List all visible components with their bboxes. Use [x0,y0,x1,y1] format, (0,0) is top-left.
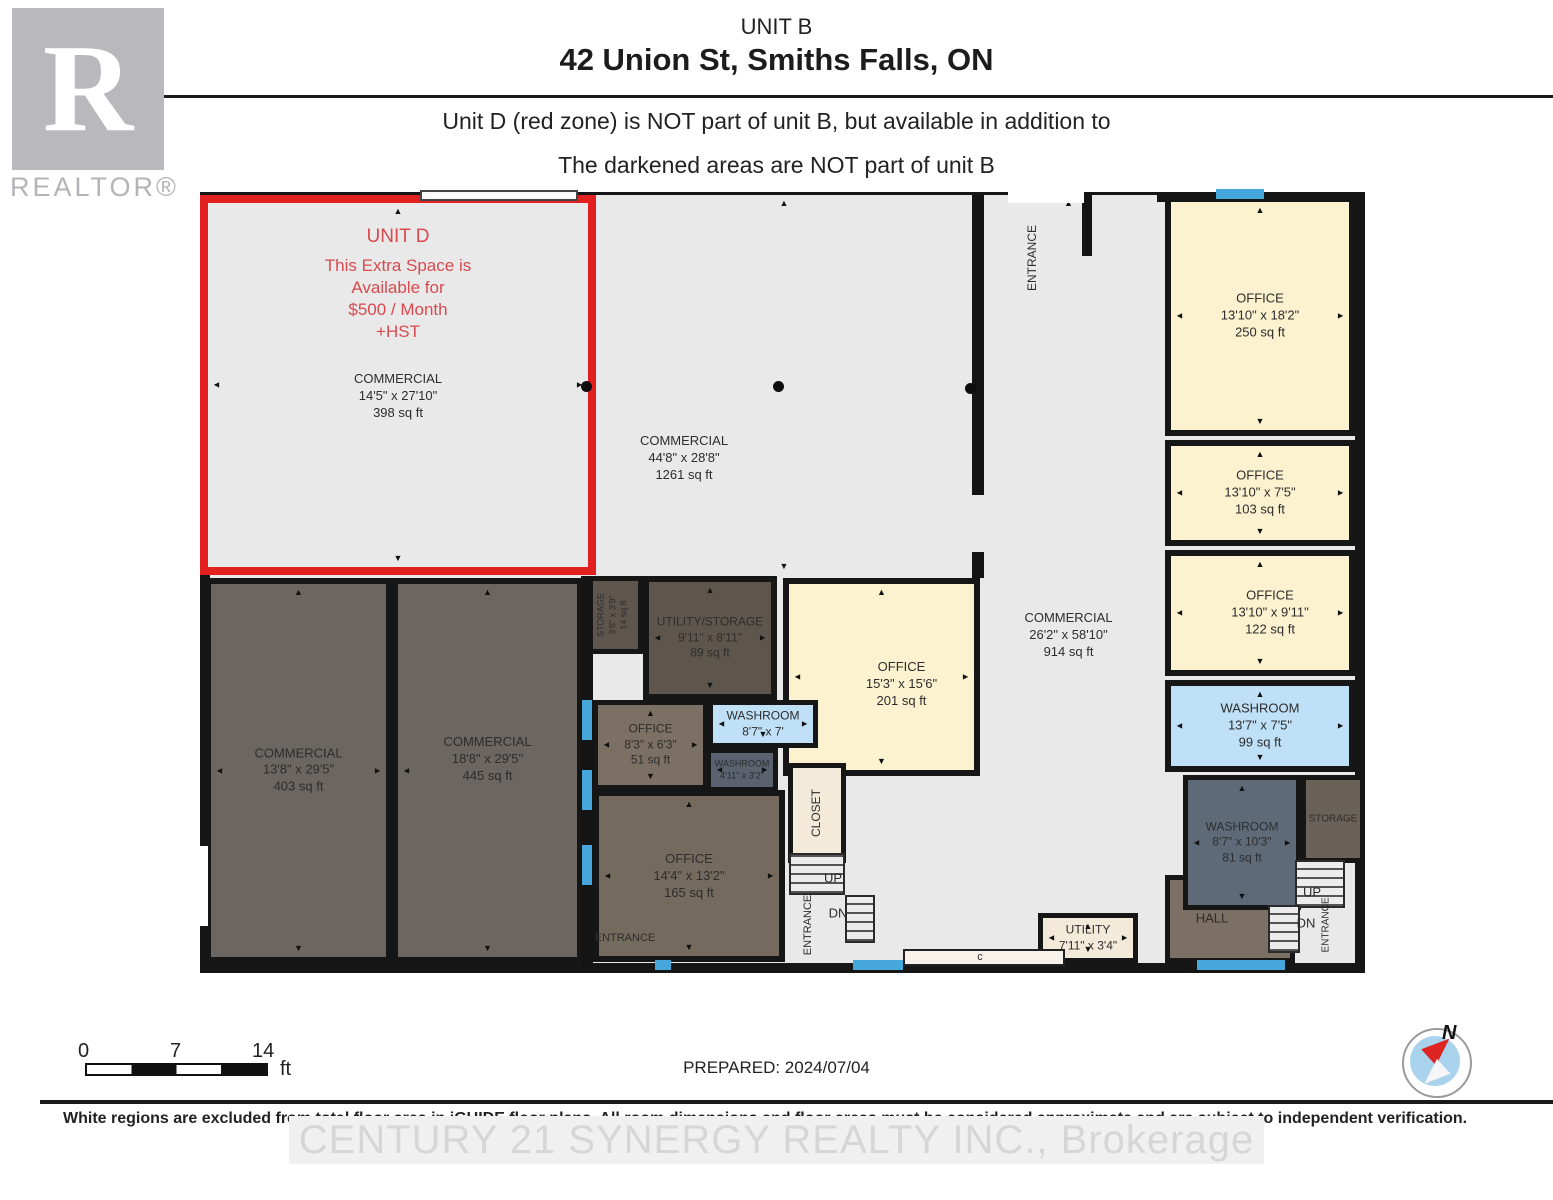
dimension-arrow-down: ▼ [780,562,789,571]
dimension-arrow-left: ◄ [1175,609,1184,618]
room-label-hall-0: HALL [1196,911,1229,928]
dimension-arrow-left: ◄ [602,741,611,750]
floorplan-page: UNIT B 42 Union St, Smiths Falls, ON Uni… [0,0,1553,1200]
dimension-arrow-down: ▼ [685,943,694,952]
room-washroom-4-11: WASHROOM4'11" x 3'2"◄► [706,748,778,792]
room-commercial-445: COMMERCIAL18'8" x 29'5"445 sq ft▲▼◄ [392,578,583,963]
room-label-commercial-445-0: COMMERCIAL18'8" x 29'5"445 sq ft [443,734,531,785]
room-washroom-99: WASHROOM13'7" x 7'5"99 sq ft▲▼◄► [1165,680,1355,772]
dimension-arrow-right: ► [373,766,382,775]
room-label-unit-d-2: COMMERCIAL14'5" x 27'10"398 sq ft [354,371,442,422]
room-commercial-403: COMMERCIAL13'8" x 29'5"403 sq ft▲▼◄► [205,578,392,963]
dimension-arrow-down: ▼ [483,944,492,953]
stairs-dn-right [1268,905,1300,953]
dimension-arrow-down: ▼ [1256,753,1265,762]
dimension-arrow-down: ▼ [1256,657,1265,666]
dimension-arrow-down: ▼ [1238,892,1247,901]
room-utility-storage-89: UTILITY/STORAGE9'11" x 8'11"89 sq ft▲▼◄► [643,576,777,700]
window [582,770,592,810]
dimension-arrow-left: ◄ [717,720,726,729]
plan-label-c: c [977,951,983,963]
room-label-office-201-0: OFFICE15'3" x 15'6"201 sq ft [866,659,937,710]
dimension-arrow-left: ◄ [1192,838,1201,847]
dimension-arrow-right: ► [1336,609,1345,618]
brokerage-watermark-text: CENTURY 21 SYNERGY REALTY INC., Brokerag… [289,1116,1264,1164]
plan-label-up: UP [1303,885,1321,900]
plan-label-up: UP [824,871,842,886]
room-label-closet-0: CLOSET [809,789,825,837]
room-label-commercial-1261-0: COMMERCIAL44'8" x 28'8"1261 sq ft [640,433,728,484]
room-label-office-165-0: OFFICE14'4" x 13'2"165 sq ft [653,851,724,902]
dimension-arrow-left: ◄ [1047,934,1056,943]
dimension-arrow-right: ► [1336,722,1345,731]
room-label-washroom-99-0: WASHROOM13'7" x 7'5"99 sq ft [1221,701,1300,752]
dimension-arrow-right: ► [1336,489,1345,498]
dimension-arrow-up: ▲ [780,199,789,208]
dimension-arrow-left: ◄ [715,766,724,775]
compass-icon [1402,1028,1472,1098]
door-recess [903,949,1065,966]
plan-label-entrance: ENTRANCE [802,895,814,956]
footer-divider [40,1100,1553,1104]
dimension-arrow-right: ► [760,766,769,775]
window [582,845,592,885]
dimension-arrow-down: ▼ [759,730,768,739]
wall [972,552,984,578]
dimension-arrow-right: ► [961,673,970,682]
door-opening [196,846,208,926]
room-label-office-250-0: OFFICE13'10" x 18'2"250 sq ft [1221,291,1300,342]
room-office-51: OFFICE8'3" x 6'3"51 sq ft▲▼◄► [593,700,708,790]
dimension-arrow-left: ◄ [215,766,224,775]
brokerage-watermark: CENTURY 21 SYNERGY REALTY INC., Brokerag… [0,1118,1553,1163]
dimension-arrow-right: ► [1120,934,1129,943]
dimension-arrow-down: ▼ [646,772,655,781]
room-corridor: COMMERCIAL26'2" x 58'10"914 sq ft▲▼ [980,195,1157,963]
room-washroom-81: WASHROOM8'7" x 10'3"81 sq ft▲▼◄► [1183,775,1301,910]
column-dot [773,381,784,392]
dimension-arrow-down: ▼ [877,757,886,766]
room-office-103: OFFICE13'10" x 7'5"103 sq ft▲▼◄► [1165,440,1355,546]
floorplan-layer: COMMERCIAL26'2" x 58'10"914 sq ft▲▼COMME… [0,0,1553,1200]
dimension-arrow-left: ◄ [1175,489,1184,498]
dimension-arrow-up: ▲ [685,800,694,809]
window [853,960,903,970]
window [1216,189,1264,199]
dimension-arrow-left: ◄ [1175,722,1184,731]
plan-label-entrance: ENTRANCE [595,932,656,944]
plan-label-dn: DN [1297,916,1316,931]
plan-label-entrance: ENTRANCE [1025,225,1039,291]
room-storage-br: STORAGE [1301,775,1365,863]
dimension-arrow-left: ◄ [402,766,411,775]
dimension-arrow-up: ▲ [1084,922,1093,931]
room-label-storage-br-0: STORAGE [1309,813,1358,826]
entrance-opening [1008,191,1084,203]
dimension-arrow-down: ▼ [706,681,715,690]
room-label-washroom-81-0: WASHROOM8'7" x 10'3"81 sq ft [1206,819,1279,866]
room-label-office-122-0: OFFICE13'10" x 9'11"122 sq ft [1231,588,1309,639]
dimension-arrow-left: ◄ [793,673,802,682]
dimension-arrow-up: ▲ [394,207,403,216]
window [582,700,592,740]
dimension-arrow-right: ► [1283,838,1292,847]
column-dot [581,381,592,392]
room-office-122: OFFICE13'10" x 9'11"122 sq ft▲▼◄► [1165,550,1355,676]
window [655,960,671,970]
dimension-arrow-up: ▲ [1256,450,1265,459]
dimension-arrow-up: ▲ [646,709,655,718]
dimension-arrow-down: ▼ [1256,417,1265,426]
wall [972,195,984,495]
plan-label-entrance: ENTRANCE [1321,897,1332,952]
dimension-arrow-down: ▼ [1256,527,1265,536]
room-unit-d: UNIT DThis Extra Space isAvailable for$5… [200,195,596,575]
dimension-arrow-up: ▲ [877,588,886,597]
room-washroom-8-7: WASHROOM8'7" x 7'◄►▼ [708,700,818,748]
dimension-arrow-up: ▲ [1256,560,1265,569]
stairs-dn-mid [845,895,875,943]
room-commercial-1261: COMMERCIAL44'8" x 28'8"1261 sq ft▲▼ [596,195,972,575]
dimension-arrow-down: ▼ [294,944,303,953]
dimension-arrow-right: ► [766,872,775,881]
prepared-date: PREPARED: 2024/07/04 [0,1058,1553,1078]
dimension-arrow-left: ◄ [212,381,221,390]
room-label-unit-d-0: UNIT D [367,225,430,250]
storefront-window [420,190,578,201]
dimension-arrow-right: ► [690,741,699,750]
compass-north-label: N [1442,1022,1456,1045]
room-label-unit-d-1: This Extra Space isAvailable for$500 / M… [325,255,471,343]
dimension-arrow-left: ◄ [603,872,612,881]
dimension-arrow-left: ◄ [1175,312,1184,321]
dimension-arrow-down: ▼ [1084,945,1093,954]
room-label-corridor-0: COMMERCIAL26'2" x 58'10"914 sq ft [1024,610,1112,661]
room-office-250: OFFICE13'10" x 18'2"250 sq ft▲▼◄► [1165,196,1355,436]
dimension-arrow-up: ▲ [706,586,715,595]
room-label-commercial-403-0: COMMERCIAL13'8" x 29'5"403 sq ft [254,745,342,796]
dimension-arrow-right: ► [758,634,767,643]
column-dot [965,383,976,394]
room-label-office-103-0: OFFICE13'10" x 7'5"103 sq ft [1224,468,1295,519]
dimension-arrow-up: ▲ [483,588,492,597]
room-label-storage-14-0: STORAGE3'8" x 3'9"14 sq ft [595,593,630,637]
plan-label-dn: DN [829,906,848,921]
room-label-utility-storage-89-0: UTILITY/STORAGE9'11" x 8'11"89 sq ft [657,615,763,662]
dimension-arrow-up: ▲ [1256,690,1265,699]
dimension-arrow-right: ► [1336,312,1345,321]
dimension-arrow-down: ▼ [394,554,403,563]
dimension-arrow-left: ◄ [653,634,662,643]
dimension-arrow-up: ▲ [294,588,303,597]
dimension-arrow-up: ▲ [1238,784,1247,793]
room-label-office-51-0: OFFICE8'3" x 6'3"51 sq ft [624,722,676,769]
dimension-arrow-up: ▲ [1256,206,1265,215]
dimension-arrow-right: ► [800,720,809,729]
room-closet: CLOSET [788,763,846,863]
window [1197,960,1285,970]
